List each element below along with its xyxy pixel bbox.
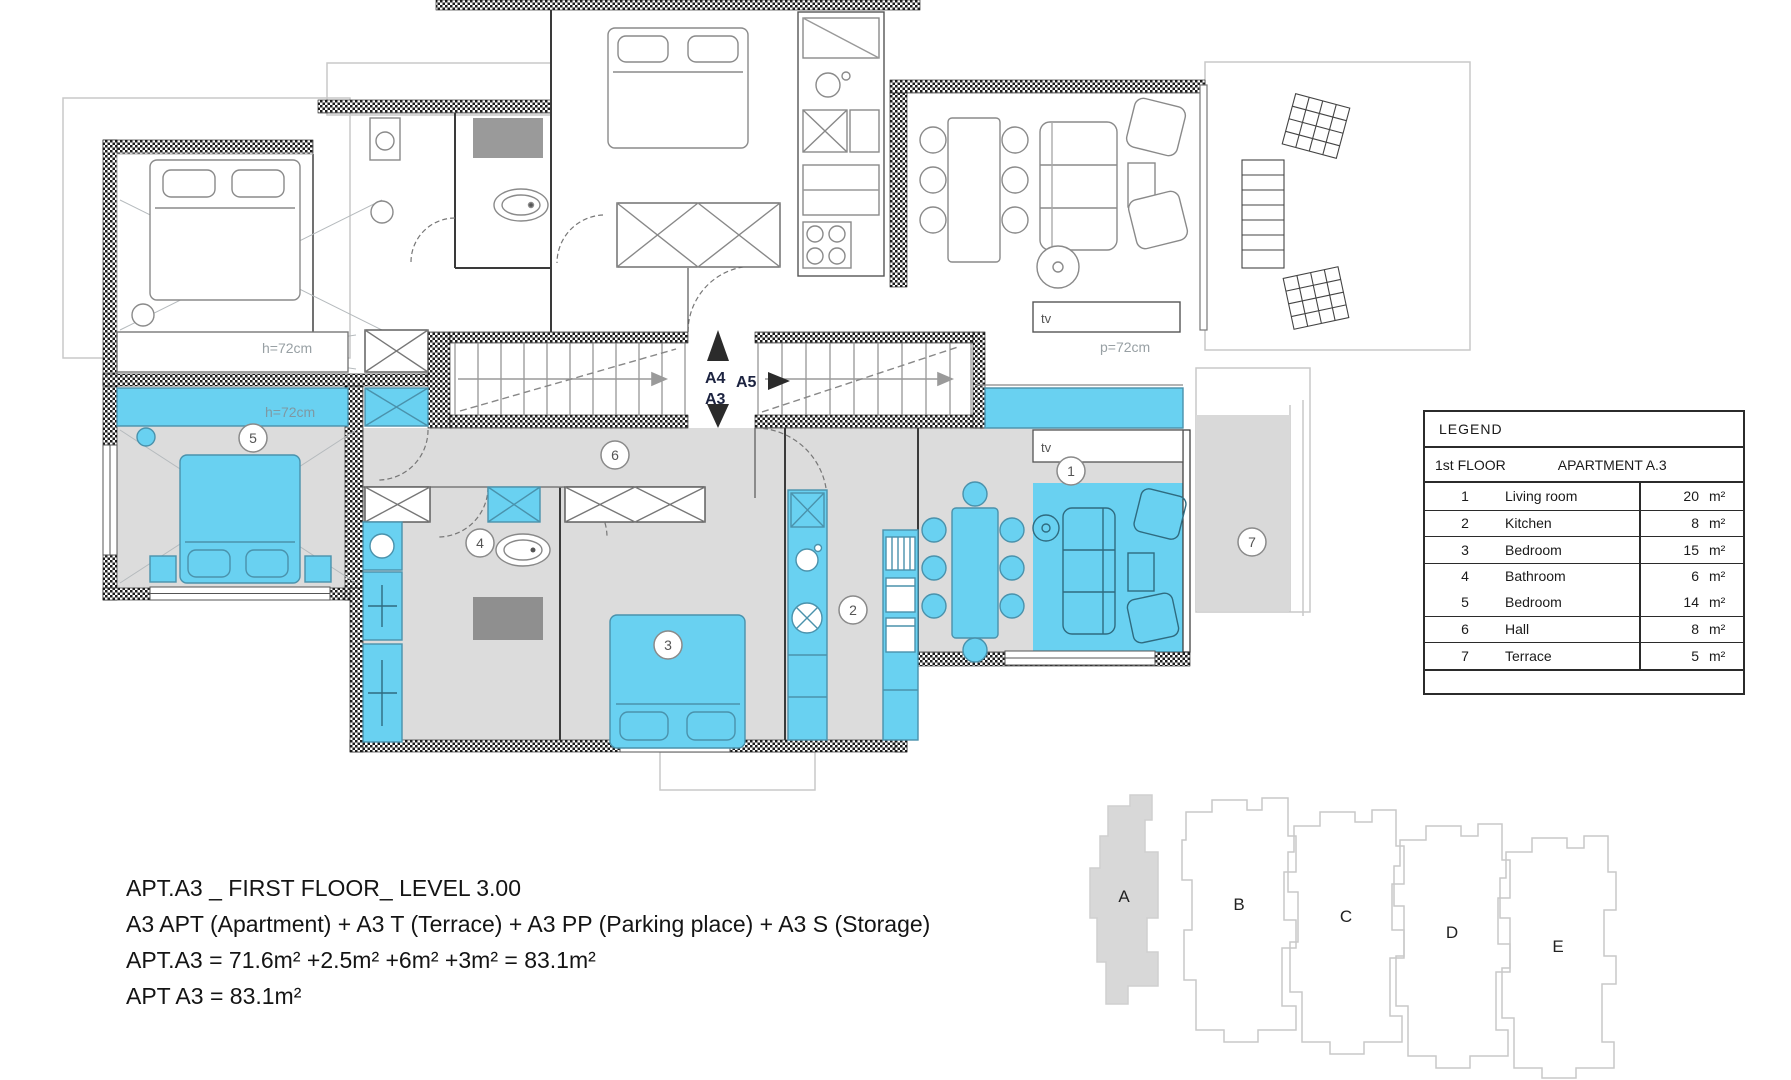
building-b-footprint (1182, 798, 1296, 1042)
room-marker: 1 (1057, 457, 1085, 485)
svg-text:6: 6 (611, 447, 619, 463)
building-c-label: C (1340, 907, 1352, 926)
room-area: 20 (1641, 488, 1699, 504)
legend-floor-label: 1st FLOOR (1435, 457, 1506, 473)
wardrobe-shelf (117, 332, 348, 372)
summary-total: APT A3 = 83.1m² (126, 978, 930, 1014)
room-number: 7 (1425, 648, 1505, 664)
sofa (1040, 122, 1117, 250)
lounger (1242, 160, 1284, 268)
tv-label-upper: tv (1041, 311, 1052, 326)
svg-text:2: 2 (849, 602, 857, 618)
entry-arrow (768, 372, 790, 390)
area-unit: m² (1699, 621, 1725, 637)
building-b-label: B (1233, 895, 1244, 914)
building-c-footprint (1288, 810, 1404, 1054)
dining-table (952, 508, 998, 638)
legend-row: 7 Terrace 5m² (1425, 642, 1743, 669)
svg-text:7: 7 (1248, 534, 1256, 550)
room-marker: 2 (839, 596, 867, 624)
svg-text:4: 4 (476, 535, 484, 551)
summary-areas: APT.A3 = 71.6m² +2.5m² +6m² +3m² = 83.1m… (126, 942, 930, 978)
room-area: 6 (1641, 568, 1699, 584)
bathtub (496, 534, 550, 566)
stair-up-arrow (707, 330, 729, 361)
staircase: A4 A3 A5 (455, 330, 971, 428)
wardrobe-box-cyan (365, 388, 428, 426)
room-name: Bedroom (1505, 542, 1639, 558)
legend-row: 1 Living room 20m² (1425, 483, 1743, 510)
shower-rug (473, 597, 543, 640)
keyplan: A B C D E (1090, 795, 1616, 1078)
building-d-label: D (1446, 923, 1458, 942)
sink (371, 201, 393, 223)
room-number: 3 (1425, 542, 1505, 558)
legend-row: 4 Bathroom 6m² (1425, 563, 1743, 590)
terrace-floor (1196, 415, 1290, 611)
svg-text:5: 5 (249, 430, 257, 446)
room-area: 5 (1641, 648, 1699, 664)
terrace-furniture (1242, 94, 1350, 330)
area-unit: m² (1699, 568, 1725, 584)
svg-text:1: 1 (1067, 463, 1075, 479)
legend-row: 2 Kitchen 8m² (1425, 510, 1743, 537)
stair-label-up: A4 (705, 370, 726, 387)
room-area: 8 (1641, 621, 1699, 637)
area-unit: m² (1699, 488, 1725, 504)
building-a-label: A (1118, 887, 1130, 906)
room-area: 15 (1641, 542, 1699, 558)
parapet-label: p=72cm (1100, 339, 1150, 355)
floor-plan-sheet: A4 A3 A5 (0, 0, 1791, 1080)
room-number: 1 (1425, 488, 1505, 504)
shelf-height-label-upper: h=72cm (262, 340, 312, 356)
legend-apartment-label: APARTMENT A.3 (1558, 457, 1667, 473)
stair-label-down: A3 (705, 391, 726, 408)
legend-row: 6 Hall 8m² (1425, 616, 1743, 643)
stool (132, 304, 154, 326)
hall-wardrobes (365, 487, 705, 522)
sideboard (985, 388, 1183, 428)
lounge-chair (1283, 267, 1349, 330)
bathtub (494, 189, 548, 221)
upper-apartment-furniture (117, 12, 1189, 372)
area-unit: m² (1699, 648, 1725, 664)
apartment-summary: APT.A3 _ FIRST FLOOR_ LEVEL 3.00 A3 APT … (126, 870, 930, 1014)
kitchen-counter-right (883, 530, 918, 740)
building-d-footprint (1394, 824, 1510, 1068)
legend-table: LEGEND 1st FLOOR APARTMENT A.3 1 Living … (1423, 410, 1745, 695)
tv-cabinet (1033, 430, 1183, 462)
shelf-height-label-lower: h=72cm (265, 404, 315, 420)
room-marker: 4 (466, 529, 494, 557)
lounge-chair (1282, 94, 1350, 159)
room-area: 14 (1641, 594, 1699, 610)
dining-table (948, 118, 1000, 262)
stair-label-entry: A5 (736, 374, 757, 391)
stove (803, 222, 851, 268)
armchair (1125, 96, 1188, 157)
room-number: 5 (1425, 594, 1505, 610)
room-marker: 7 (1238, 528, 1266, 556)
room-number: 4 (1425, 568, 1505, 584)
legend-row: 5 Bedroom 14m² (1425, 589, 1743, 616)
kitchen-column (798, 12, 884, 276)
room-name: Kitchen (1505, 515, 1639, 531)
room-name: Bathroom (1505, 568, 1639, 584)
summary-title: APT.A3 _ FIRST FLOOR_ LEVEL 3.00 (126, 870, 930, 906)
legend-row: 3 Bedroom 15m² (1425, 536, 1743, 563)
summary-components: A3 APT (Apartment) + A3 T (Terrace) + A3… (126, 906, 930, 942)
wardrobe-box (365, 330, 428, 372)
svg-text:3: 3 (664, 637, 672, 653)
tv-cabinet (1033, 302, 1180, 332)
utility-column (363, 522, 402, 742)
room-name: Terrace (1505, 648, 1639, 664)
room-marker: 3 (654, 631, 682, 659)
room-area: 8 (1641, 515, 1699, 531)
building-e-footprint (1500, 836, 1616, 1078)
legend-title: LEGEND (1425, 412, 1743, 448)
room-name: Hall (1505, 621, 1639, 637)
legend-footer (1425, 669, 1743, 694)
kitchen-counter-left (788, 490, 827, 740)
room-name: Living room (1505, 488, 1639, 504)
area-unit: m² (1699, 515, 1725, 531)
room-name: Bedroom (1505, 594, 1639, 610)
area-unit: m² (1699, 594, 1725, 610)
room-number: 6 (1425, 621, 1505, 637)
building-e-label: E (1552, 937, 1563, 956)
legend-header: 1st FLOOR APARTMENT A.3 (1425, 448, 1743, 483)
room-marker: 5 (239, 424, 267, 452)
tv-label-lower: tv (1041, 440, 1052, 455)
room-marker: 6 (601, 441, 629, 469)
room-number: 2 (1425, 515, 1505, 531)
upper-rug (473, 118, 543, 158)
area-unit: m² (1699, 542, 1725, 558)
wardrobe-double (617, 203, 780, 267)
